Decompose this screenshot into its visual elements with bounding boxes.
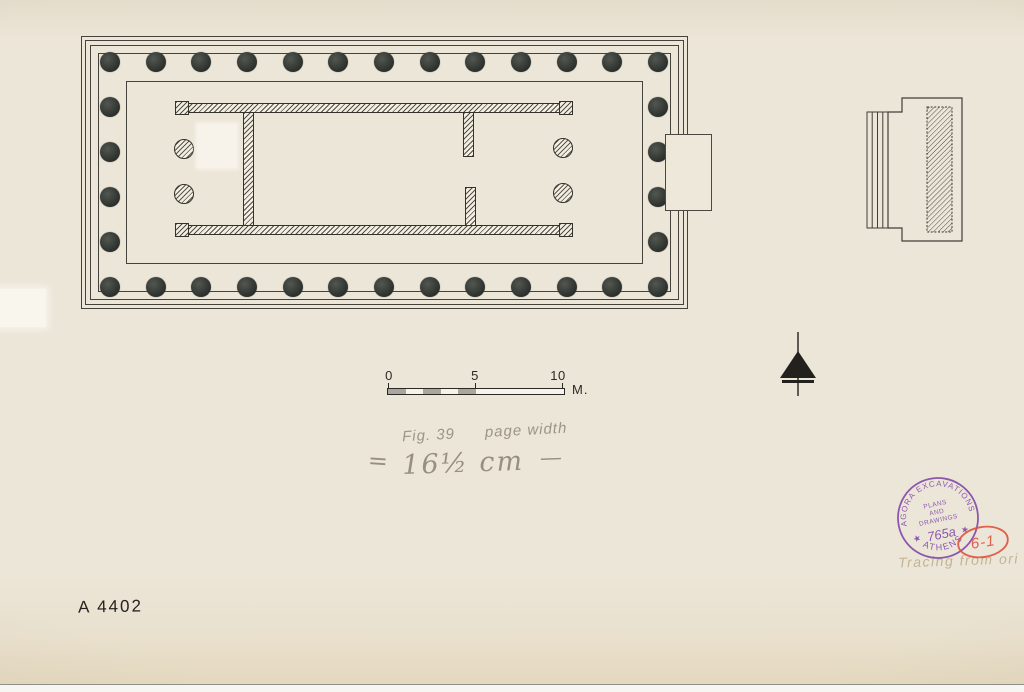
cella-wall — [243, 112, 254, 226]
scale-bar-rule — [387, 388, 565, 395]
figure-number: Fig. 39 — [402, 426, 456, 446]
peristyle-column — [100, 232, 120, 252]
agora-excavations-stamp: AGORA EXCAVATIONS ★ ATHENS ★ PLANS AND D… — [869, 449, 1007, 587]
peristyle-column — [283, 277, 303, 297]
peristyle-column — [557, 277, 577, 297]
peristyle-column — [648, 232, 668, 252]
red-circled-code: 6-1 — [951, 516, 1015, 569]
peristyle-column — [511, 277, 531, 297]
anta-block — [175, 101, 189, 115]
anta-block — [175, 223, 189, 237]
peristyle-column — [374, 277, 394, 297]
scale-tick-5: 5 — [471, 368, 479, 383]
altar-steps — [867, 112, 888, 228]
peristyle-column — [374, 52, 394, 72]
anta-block — [559, 101, 573, 115]
anta-block — [559, 223, 573, 237]
cella-wall — [465, 187, 476, 226]
porch-column — [174, 184, 194, 204]
porch-column — [553, 183, 573, 203]
scale-unit-label: M. — [572, 382, 588, 397]
peristyle-column — [648, 52, 668, 72]
scale-bar: 0 5 10 M. — [386, 368, 601, 400]
scale-tick-0: 0 — [385, 368, 393, 383]
peristyle-column — [100, 97, 120, 117]
paper-repair-patch-left — [0, 289, 46, 327]
peristyle-column — [648, 97, 668, 117]
peristyle-column — [146, 52, 166, 72]
peristyle-column — [648, 277, 668, 297]
paper-repair-patch — [197, 124, 237, 168]
page-width-note: page width — [484, 420, 567, 441]
temple-floor-plan — [81, 36, 688, 309]
porch-column — [553, 138, 573, 158]
cella-wall — [175, 103, 573, 113]
scale-segment — [458, 389, 476, 394]
peristyle-column — [420, 52, 440, 72]
measurement-value: 16½ cm — [402, 446, 525, 481]
temple-ramp — [665, 134, 712, 211]
peristyle-column — [100, 142, 120, 162]
cella-wall — [175, 225, 573, 235]
scale-tick-10: 10 — [550, 368, 565, 383]
catalog-number: A 4402 — [78, 596, 143, 617]
peristyle-column — [557, 52, 577, 72]
red-code-text: 6-1 — [970, 532, 997, 553]
dash-mark: — — [539, 445, 562, 471]
north-arrow-icon — [770, 328, 826, 400]
altar-plan — [860, 92, 970, 248]
scale-segment — [423, 389, 441, 394]
peristyle-column — [146, 277, 166, 297]
scale-segment — [476, 389, 564, 394]
measurement-note: =16½ cm— — [367, 439, 608, 482]
scale-segment — [388, 389, 406, 394]
peristyle-column — [100, 52, 120, 72]
peristyle-column — [237, 52, 257, 72]
peristyle-column — [511, 52, 531, 72]
peristyle-column — [283, 52, 303, 72]
scan-bottom-edge — [0, 684, 1024, 692]
peristyle-column — [420, 277, 440, 297]
peristyle-column — [100, 187, 120, 207]
altar-hatched-block — [927, 107, 952, 232]
porch-column — [174, 139, 194, 159]
cella-wall — [463, 112, 474, 157]
peristyle-column — [237, 277, 257, 297]
scale-segment — [406, 389, 424, 394]
scale-segment — [441, 389, 459, 394]
equals-mark: = — [367, 446, 389, 475]
drawing-sheet: 0 5 10 M. Fig. 39page width =16½ cm— A 4… — [0, 0, 1024, 692]
peristyle-column — [100, 277, 120, 297]
